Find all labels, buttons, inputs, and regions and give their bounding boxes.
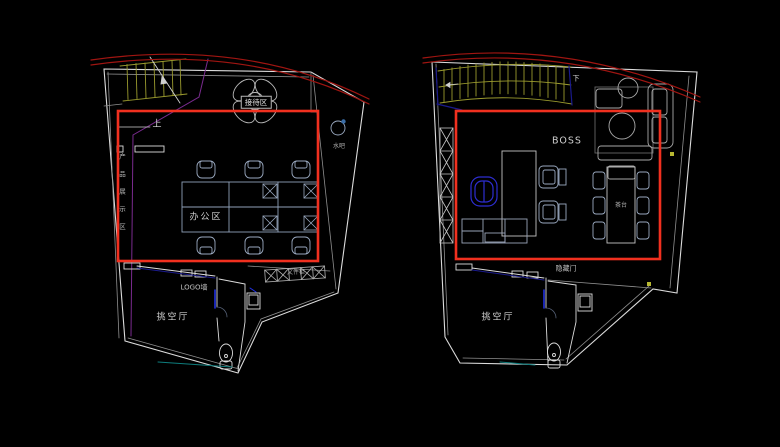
guest-chairs xyxy=(539,166,566,223)
left-purple-line xyxy=(131,59,208,336)
right-door-swing xyxy=(546,308,556,318)
reception-table xyxy=(229,75,281,127)
office-desks xyxy=(182,182,318,232)
wardrobe-cabinet xyxy=(440,128,453,243)
right-plan xyxy=(432,62,697,368)
right-navy-line xyxy=(472,270,544,280)
credenza xyxy=(462,219,527,243)
right-inner-walls xyxy=(436,64,689,360)
left-teal-line xyxy=(158,362,232,367)
roof-arcs xyxy=(91,53,700,104)
left-door-swing xyxy=(217,307,227,317)
left-stairs xyxy=(120,59,187,101)
right-lower-partitions xyxy=(456,264,576,363)
right-stairs-navy-outline xyxy=(436,66,572,110)
left-inner-walls xyxy=(104,72,336,369)
left-plan xyxy=(104,57,364,373)
cad-canvas: 接待区 上 产品展示区 办公区 LOGO墙 挑空厅 文件柜 水吧 下 BOSS … xyxy=(0,0,780,447)
left-navy-line xyxy=(137,268,215,278)
tea-table xyxy=(607,167,635,243)
tea-table-chairs xyxy=(593,172,649,239)
yellow-marker-wall xyxy=(670,152,674,156)
left-red-highlight-box xyxy=(118,111,318,261)
office-chairs xyxy=(197,161,310,254)
right-outer-walls xyxy=(432,62,697,365)
right-stairs xyxy=(438,62,572,104)
left-washbasin xyxy=(247,293,260,309)
floorplan-linework xyxy=(0,0,780,447)
left-basin-blue-mark xyxy=(250,288,256,292)
water-bar-symbol xyxy=(331,119,346,135)
yellow-marker-door xyxy=(647,282,651,286)
left-wall-shelves xyxy=(117,146,164,152)
boss-desk xyxy=(502,151,536,236)
left-outer-walls xyxy=(104,69,364,373)
boss-exec-chair xyxy=(471,177,497,206)
right-washbasin xyxy=(578,294,592,311)
file-cabinet xyxy=(265,266,326,282)
